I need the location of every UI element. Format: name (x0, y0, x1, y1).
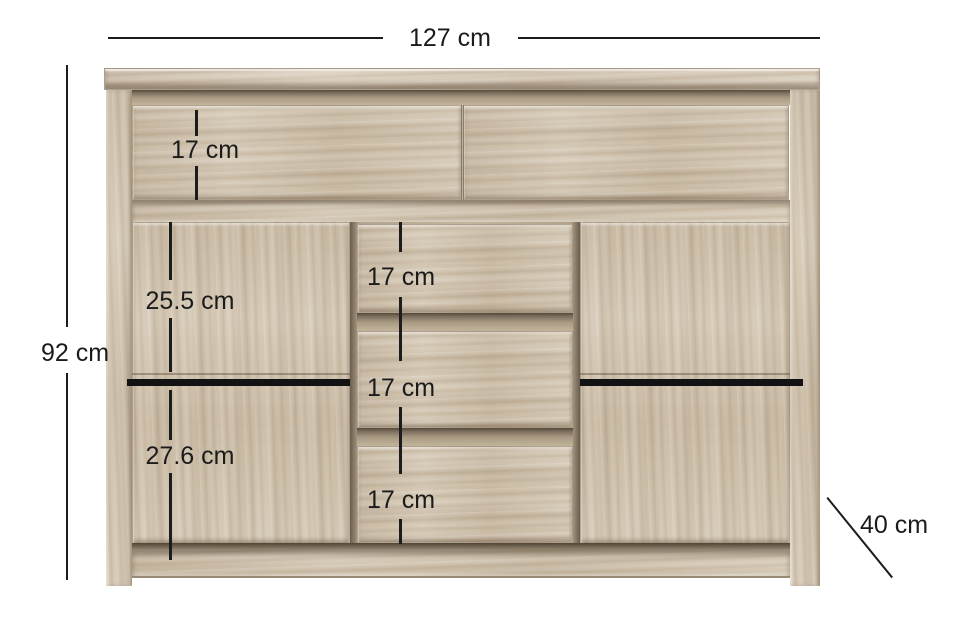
door-upper-tick-upper (169, 222, 172, 280)
middle-drawer-tick-4 (399, 519, 402, 544)
top-board (104, 68, 820, 90)
middle-drawer-label-3: 17 cm (361, 486, 441, 514)
width-dimension-line-left (108, 37, 383, 39)
top-recess-band (132, 90, 790, 105)
middle-drawer-label-1: 17 cm (361, 263, 441, 291)
height-dimension-line-lower (66, 373, 68, 580)
bottom-plinth (132, 549, 790, 578)
width-dimension-label: 127 cm (385, 24, 515, 52)
middle-rail (132, 200, 790, 222)
top-drawer-right (463, 105, 789, 200)
top-drawer-tick-lower (195, 166, 198, 200)
door-lower-tick-upper (169, 390, 172, 440)
height-dimension-label: 92 cm (36, 339, 114, 367)
left-door-seam (132, 373, 350, 375)
middle-drawer-tick-2 (399, 297, 402, 361)
top-drawer-divider-seam (461, 105, 464, 200)
top-drawer-label: 17 cm (165, 136, 245, 164)
right-side-panel (790, 90, 820, 586)
furniture-dimension-diagram: 127 cm 92 cm 40 cm 17 cm 25.5 cm 27.6 cm… (0, 0, 971, 619)
middle-drawer-gap-2 (357, 428, 573, 446)
middle-drawer-label-2: 17 cm (361, 374, 441, 402)
door-upper-label: 25.5 cm (138, 287, 242, 315)
middle-drawer-tick-1 (399, 222, 402, 252)
middle-drawer-tick-3 (399, 407, 402, 474)
door-lower-tick-lower (169, 473, 172, 560)
left-split-marker-bar (127, 379, 350, 386)
right-door-seam (580, 373, 790, 375)
door-lower-label: 27.6 cm (138, 442, 242, 470)
depth-dimension-label: 40 cm (852, 511, 936, 539)
right-split-marker-bar (580, 379, 803, 386)
width-dimension-line-right (518, 37, 820, 39)
middle-drawer-gap-1 (357, 313, 573, 331)
door-upper-tick-lower (169, 318, 172, 372)
top-drawer-tick-upper (195, 110, 198, 136)
height-dimension-line-upper (66, 65, 68, 327)
left-side-panel (106, 90, 132, 586)
